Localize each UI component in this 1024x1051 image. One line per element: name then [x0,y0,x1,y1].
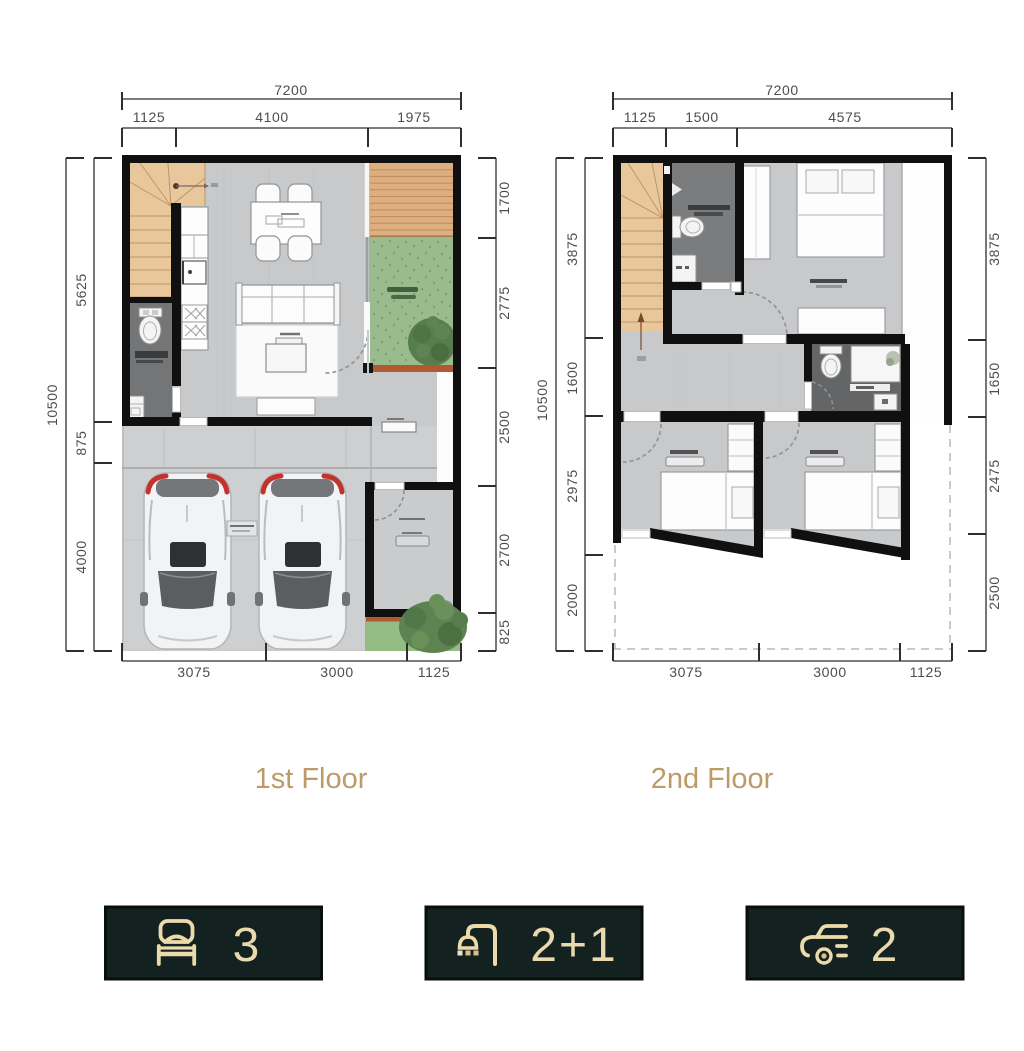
svg-text:1st Floor: 1st Floor [255,763,368,795]
svg-text:4000: 4000 [73,540,89,574]
svg-text:3075: 3075 [669,664,703,680]
svg-text:1600: 1600 [564,361,580,395]
svg-text:2nd Floor: 2nd Floor [651,763,774,795]
svg-text:4575: 4575 [828,109,862,125]
svg-text:2+1: 2+1 [530,919,617,972]
svg-text:2000: 2000 [564,583,580,617]
svg-text:1975: 1975 [397,109,431,125]
svg-text:1125: 1125 [418,664,451,680]
svg-text:1125: 1125 [624,109,657,125]
svg-text:5625: 5625 [73,273,89,307]
svg-text:2700: 2700 [496,533,512,567]
svg-text:7200: 7200 [274,82,308,98]
svg-text:1125: 1125 [133,109,166,125]
svg-text:2: 2 [871,919,898,972]
svg-text:2475: 2475 [986,459,1002,493]
svg-text:2500: 2500 [986,576,1002,610]
svg-text:7200: 7200 [765,82,799,98]
svg-text:875: 875 [73,430,89,455]
svg-text:825: 825 [496,619,512,644]
svg-text:3000: 3000 [813,664,847,680]
svg-text:2500: 2500 [496,410,512,444]
svg-text:10500: 10500 [44,384,60,426]
svg-text:1700: 1700 [496,181,512,215]
svg-text:4100: 4100 [255,109,289,125]
svg-text:3000: 3000 [320,664,354,680]
svg-text:2775: 2775 [496,286,512,320]
svg-text:1125: 1125 [910,664,943,680]
svg-text:3875: 3875 [564,232,580,266]
svg-text:1500: 1500 [685,109,719,125]
svg-text:3875: 3875 [986,232,1002,266]
svg-text:3075: 3075 [177,664,211,680]
svg-text:3: 3 [233,919,260,972]
svg-text:10500: 10500 [534,379,550,421]
svg-text:1650: 1650 [986,362,1002,396]
svg-text:2975: 2975 [564,469,580,503]
